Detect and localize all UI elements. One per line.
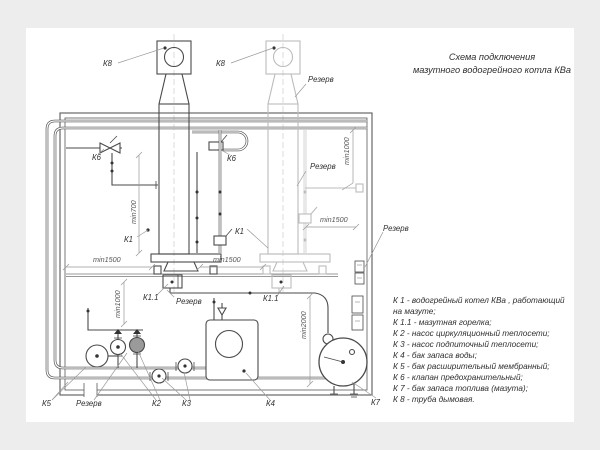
dim-min1500-mid: min1500	[213, 255, 241, 264]
dim-min1500-right: min1500	[320, 215, 348, 224]
label-k4: К4	[266, 399, 276, 408]
wall-panels	[352, 261, 364, 330]
legend-line-9: К 7 - бак запаса топлива (мазута);	[393, 384, 528, 393]
centerlines	[174, 34, 283, 292]
legend-line-10: К 8 - труба дымовая.	[393, 395, 475, 404]
door-opening	[84, 383, 97, 397]
legend-line-1: К 1 - водогрейный котел КВа , работающий	[393, 296, 565, 305]
title-line-1: Схема подключения	[449, 52, 535, 62]
legend-line-4: К 2 - насос циркуляционный теплосети;	[393, 329, 550, 338]
dim-min1500-left: min1500	[93, 255, 121, 264]
label-k6-1: К6	[92, 153, 102, 162]
fuel-tank-k7	[319, 338, 367, 397]
label-reserve-burner: Резерв	[176, 297, 202, 306]
label-reserve-bottom: Резерв	[76, 399, 102, 408]
water-tank-k4	[206, 298, 258, 380]
legend: К 1 - водогрейный котел КВа , работающий…	[393, 296, 565, 404]
riser-valve-2	[299, 214, 311, 223]
dim-min1000-top: min1000	[342, 137, 351, 165]
boiler-scheme-drawing: К8 К8 Резерв К6 К6 Резерв К1 К1 К1.1 Рез…	[0, 0, 600, 450]
legend-line-5: К 3 - насос подпиточный теплосети;	[393, 340, 538, 349]
title-line-2: мазутного водогрейного котла КВа	[413, 65, 571, 75]
label-reserve-chimney: Резерв	[308, 75, 334, 84]
foundation-line	[66, 274, 338, 277]
boiler-2-risers-reserve	[299, 130, 363, 253]
label-k1-2: К1	[235, 227, 244, 236]
legend-line-7: К 5 - бак расширительный мембранный;	[393, 362, 550, 371]
dim-min1000-left: min1000	[113, 290, 122, 318]
label-k3: К3	[182, 399, 192, 408]
legend-line-8: К 6 - клапан предохранительный;	[393, 373, 523, 382]
drawing-title: Схема подключения мазутного водогрейного…	[413, 52, 571, 75]
dim-min2000: min2000	[299, 311, 308, 339]
boiler-2-reserve	[260, 254, 330, 293]
legend-line-2: на мазуте;	[393, 307, 436, 316]
label-k8-1: К8	[103, 59, 113, 68]
label-reserve-wall: Резерв	[383, 224, 409, 233]
label-k11-1: К1.1	[143, 293, 158, 302]
dim-min700: min700	[129, 200, 138, 224]
label-k11-2: К1.1	[263, 294, 278, 303]
riser-valve-1	[214, 236, 226, 245]
label-k8-2: К8	[216, 59, 226, 68]
legend-line-6: К 4 - бак запаса воды;	[393, 351, 477, 360]
feed-pumps-k3	[150, 359, 194, 383]
label-k2: К2	[152, 399, 162, 408]
legend-line-3: К 1.1 - мазутная горелка;	[393, 318, 492, 327]
label-k6-2: К6	[227, 154, 237, 163]
label-k7: К7	[371, 398, 381, 407]
label-reserve-riser: Резерв	[310, 162, 336, 171]
label-k1-1: К1	[124, 235, 133, 244]
label-k5: К5	[42, 399, 52, 408]
boiler-1	[151, 254, 221, 293]
safety-valve-1-assembly	[66, 136, 158, 189]
